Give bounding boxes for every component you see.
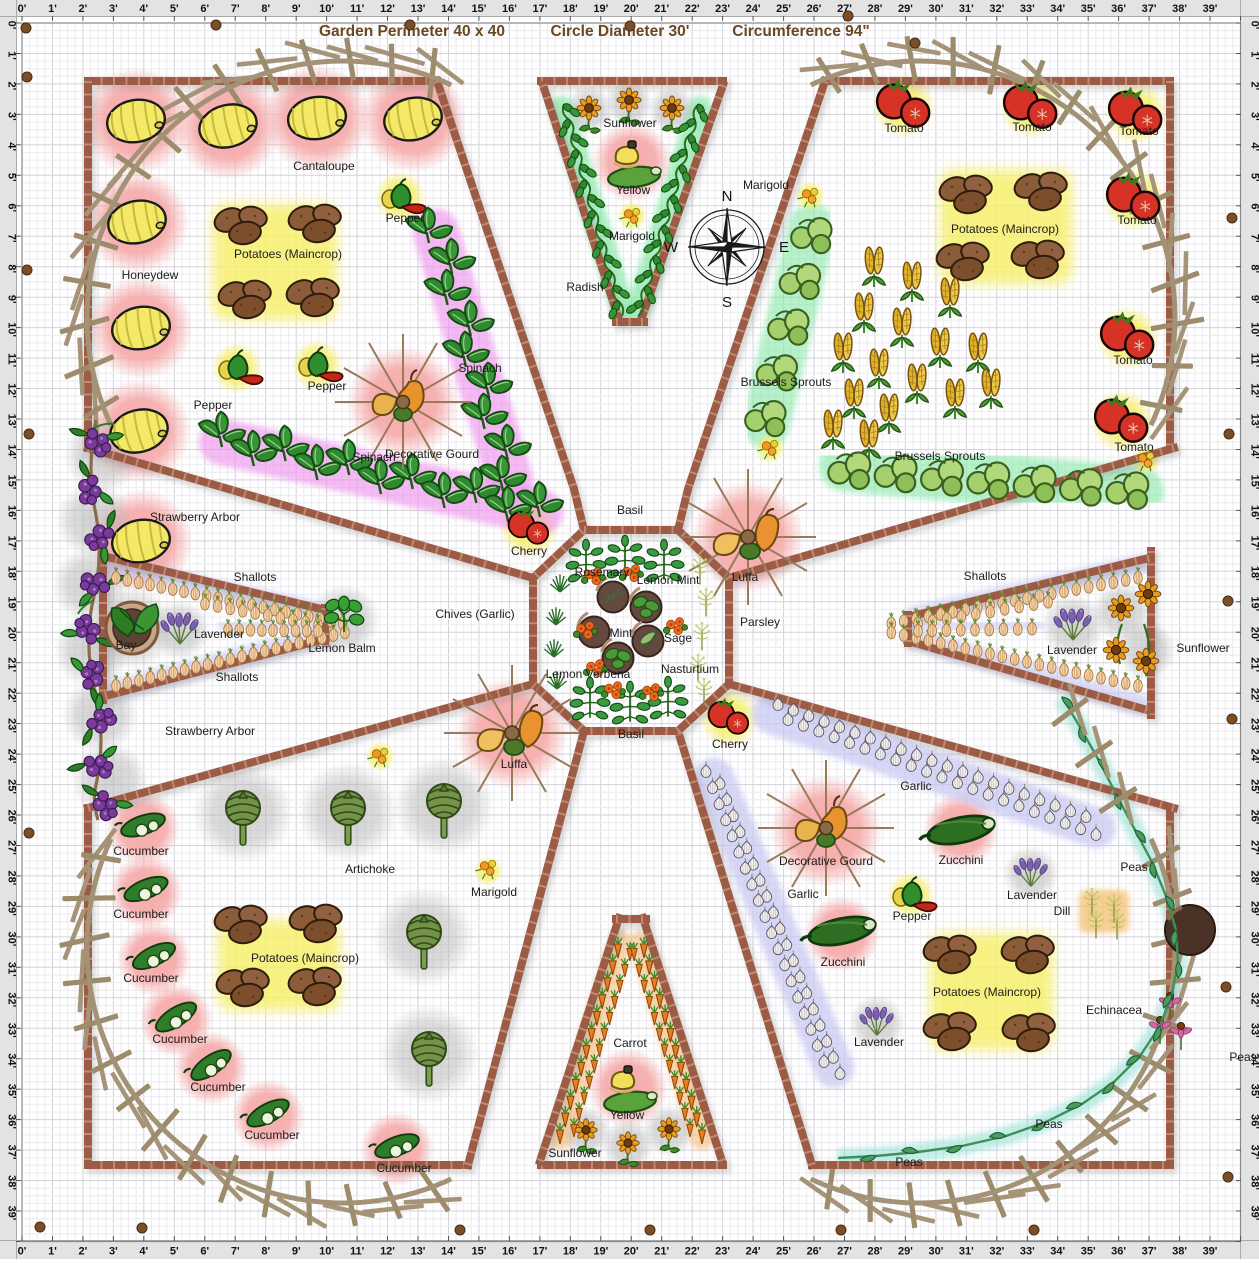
svg-text:2': 2'	[6, 82, 18, 91]
svg-text:36': 36'	[1249, 1114, 1259, 1129]
svg-text:Basil: Basil	[618, 727, 644, 741]
svg-text:25': 25'	[1249, 779, 1259, 794]
svg-text:34': 34'	[6, 1053, 18, 1068]
svg-text:Bay: Bay	[116, 638, 137, 652]
svg-text:Circumference 94": Circumference 94"	[732, 23, 869, 40]
svg-text:Tomato: Tomato	[884, 121, 924, 135]
svg-text:24': 24'	[1249, 749, 1259, 764]
svg-text:34': 34'	[1050, 3, 1065, 15]
svg-text:14': 14'	[441, 3, 456, 15]
svg-text:3': 3'	[109, 3, 118, 15]
svg-text:27': 27'	[837, 1246, 852, 1258]
svg-text:0': 0'	[18, 1246, 27, 1258]
svg-text:Cucumber: Cucumber	[113, 844, 168, 858]
svg-text:4': 4'	[6, 142, 18, 151]
svg-text:20': 20'	[6, 627, 18, 642]
svg-text:24': 24'	[746, 3, 761, 15]
svg-text:13': 13'	[1249, 414, 1259, 429]
svg-text:Tomato: Tomato	[1114, 440, 1154, 454]
svg-text:Pepper: Pepper	[194, 398, 233, 412]
svg-text:27': 27'	[6, 840, 18, 855]
svg-text:10': 10'	[1249, 322, 1259, 337]
svg-text:22': 22'	[6, 688, 18, 703]
svg-text:12': 12'	[380, 3, 395, 15]
svg-text:21': 21'	[654, 3, 669, 15]
svg-text:11': 11'	[350, 3, 365, 15]
svg-text:3': 3'	[1249, 112, 1259, 121]
svg-text:Cucumber: Cucumber	[376, 1161, 431, 1175]
svg-text:21': 21'	[6, 657, 18, 672]
svg-text:36': 36'	[6, 1114, 18, 1129]
svg-text:18': 18'	[563, 1246, 578, 1258]
svg-text:36': 36'	[1111, 3, 1126, 15]
svg-text:10': 10'	[319, 3, 334, 15]
svg-text:33': 33'	[1020, 3, 1035, 15]
svg-text:Garlic: Garlic	[900, 779, 931, 793]
svg-text:37': 37'	[1142, 3, 1157, 15]
svg-text:Rosemary: Rosemary	[575, 565, 630, 579]
svg-text:Artichoke: Artichoke	[345, 862, 395, 876]
svg-text:26': 26'	[807, 1246, 822, 1258]
svg-text:Cucumber: Cucumber	[244, 1128, 299, 1142]
svg-text:7': 7'	[231, 3, 240, 15]
svg-text:18': 18'	[1249, 566, 1259, 581]
svg-text:5': 5'	[170, 1246, 179, 1258]
svg-text:Brussels Sprouts: Brussels Sprouts	[895, 449, 986, 463]
svg-text:Marigold: Marigold	[743, 178, 789, 192]
svg-text:E: E	[779, 239, 789, 256]
svg-text:Yellow: Yellow	[610, 1108, 645, 1122]
svg-text:35': 35'	[1081, 3, 1096, 15]
svg-text:Tomato: Tomato	[1012, 120, 1052, 134]
svg-text:12': 12'	[1249, 383, 1259, 398]
svg-text:Peas: Peas	[1120, 860, 1147, 874]
svg-text:32': 32'	[1249, 992, 1259, 1007]
svg-text:6': 6'	[200, 1246, 209, 1258]
svg-text:33': 33'	[1249, 1023, 1259, 1038]
svg-text:28': 28'	[867, 1246, 882, 1258]
svg-text:Peas: Peas	[1035, 1117, 1062, 1131]
svg-text:14': 14'	[1249, 444, 1259, 459]
svg-text:35': 35'	[6, 1084, 18, 1099]
svg-text:26': 26'	[1249, 810, 1259, 825]
svg-text:15': 15'	[6, 474, 18, 489]
svg-text:13': 13'	[411, 1246, 426, 1258]
svg-text:6': 6'	[1249, 203, 1259, 212]
svg-text:19': 19'	[593, 3, 608, 15]
svg-text:Decorative Gourd: Decorative Gourd	[779, 854, 873, 868]
svg-text:29': 29'	[898, 1246, 913, 1258]
svg-text:Potatoes (Maincrop): Potatoes (Maincrop)	[951, 222, 1059, 236]
svg-text:9': 9'	[292, 1246, 301, 1258]
svg-text:Potatoes (Maincrop): Potatoes (Maincrop)	[933, 985, 1041, 999]
svg-text:Garlic: Garlic	[787, 887, 818, 901]
svg-text:35': 35'	[1249, 1084, 1259, 1099]
svg-text:Echinacea: Echinacea	[1086, 1003, 1142, 1017]
svg-text:39': 39'	[1249, 1206, 1259, 1221]
svg-text:26': 26'	[6, 810, 18, 825]
svg-text:30': 30'	[1249, 931, 1259, 946]
svg-text:6': 6'	[6, 203, 18, 212]
svg-text:32': 32'	[6, 992, 18, 1007]
svg-text:Zucchini: Zucchini	[939, 853, 984, 867]
svg-text:Strawberry Arbor: Strawberry Arbor	[150, 510, 240, 524]
svg-text:23': 23'	[6, 718, 18, 733]
svg-text:20': 20'	[624, 3, 639, 15]
svg-text:Mint: Mint	[610, 626, 633, 640]
svg-text:38': 38'	[6, 1175, 18, 1190]
svg-text:30': 30'	[6, 931, 18, 946]
svg-text:7': 7'	[6, 234, 18, 243]
svg-text:Lavender: Lavender	[1047, 643, 1097, 657]
svg-text:21': 21'	[654, 1246, 669, 1258]
svg-text:Parsley: Parsley	[740, 615, 780, 629]
svg-text:Decorative Gourd: Decorative Gourd	[385, 447, 479, 461]
svg-text:Potatoes (Maincrop): Potatoes (Maincrop)	[234, 247, 342, 261]
svg-text:Sunflower: Sunflower	[548, 1146, 601, 1160]
svg-text:Carrot: Carrot	[613, 1036, 647, 1050]
svg-text:Cucumber: Cucumber	[113, 907, 168, 921]
svg-text:Marigold: Marigold	[609, 229, 655, 243]
svg-text:31': 31'	[959, 1246, 974, 1258]
svg-text:8': 8'	[6, 264, 18, 273]
svg-text:23': 23'	[715, 3, 730, 15]
svg-text:Sage: Sage	[664, 631, 692, 645]
svg-text:16': 16'	[502, 1246, 517, 1258]
svg-text:13': 13'	[411, 3, 426, 15]
svg-text:Peas: Peas	[1229, 1050, 1256, 1064]
svg-text:31': 31'	[6, 962, 18, 977]
svg-text:17': 17'	[6, 535, 18, 550]
svg-text:11': 11'	[1249, 353, 1259, 368]
svg-text:0': 0'	[1249, 21, 1259, 30]
svg-text:3': 3'	[6, 112, 18, 121]
svg-text:28': 28'	[867, 3, 882, 15]
svg-text:32': 32'	[989, 1246, 1004, 1258]
svg-text:28': 28'	[6, 870, 18, 885]
svg-text:2': 2'	[79, 1246, 88, 1258]
svg-text:Sunflower: Sunflower	[603, 116, 656, 130]
svg-text:1': 1'	[6, 51, 18, 60]
svg-text:Lavender: Lavender	[1007, 888, 1057, 902]
svg-text:10': 10'	[6, 322, 18, 337]
svg-text:15': 15'	[1249, 474, 1259, 489]
svg-text:17': 17'	[532, 1246, 547, 1258]
svg-text:Brussels Sprouts: Brussels Sprouts	[741, 375, 832, 389]
svg-text:28': 28'	[1249, 870, 1259, 885]
svg-text:35': 35'	[1081, 1246, 1096, 1258]
svg-text:39': 39'	[1203, 1246, 1218, 1258]
svg-text:Cucumber: Cucumber	[123, 971, 178, 985]
svg-text:37': 37'	[1249, 1145, 1259, 1160]
svg-text:38': 38'	[1172, 3, 1187, 15]
svg-text:38': 38'	[1172, 1246, 1187, 1258]
svg-text:14': 14'	[441, 1246, 456, 1258]
svg-text:12': 12'	[380, 1246, 395, 1258]
svg-text:Marigold: Marigold	[471, 885, 517, 899]
svg-text:Shallots: Shallots	[964, 569, 1007, 583]
svg-text:18': 18'	[6, 566, 18, 581]
svg-text:Tomato: Tomato	[1117, 213, 1157, 227]
svg-text:Lemon Verbena: Lemon Verbena	[546, 667, 631, 681]
svg-text:30': 30'	[928, 3, 943, 15]
svg-text:19': 19'	[6, 596, 18, 611]
svg-text:0': 0'	[6, 21, 18, 30]
svg-text:25': 25'	[776, 3, 791, 15]
svg-text:23': 23'	[1249, 718, 1259, 733]
svg-text:14': 14'	[6, 444, 18, 459]
svg-text:1': 1'	[1249, 51, 1259, 60]
svg-text:Pepper: Pepper	[893, 909, 932, 923]
svg-text:N: N	[722, 188, 733, 205]
svg-text:20': 20'	[1249, 627, 1259, 642]
svg-text:Pepper: Pepper	[386, 211, 425, 225]
svg-text:Lavender: Lavender	[854, 1035, 904, 1049]
svg-text:3': 3'	[109, 1246, 118, 1258]
svg-text:39': 39'	[6, 1206, 18, 1221]
svg-text:33': 33'	[6, 1023, 18, 1038]
svg-text:22': 22'	[685, 3, 700, 15]
svg-text:Shallots: Shallots	[234, 570, 277, 584]
svg-text:4': 4'	[139, 1246, 148, 1258]
svg-text:32': 32'	[989, 3, 1004, 15]
svg-text:Dill: Dill	[1054, 904, 1071, 918]
svg-text:36': 36'	[1111, 1246, 1126, 1258]
svg-text:Pepper: Pepper	[308, 379, 347, 393]
svg-text:18': 18'	[563, 3, 578, 15]
svg-text:15': 15'	[471, 1246, 486, 1258]
svg-text:17': 17'	[532, 3, 547, 15]
svg-text:Lavender: Lavender	[194, 627, 244, 641]
svg-text:19': 19'	[593, 1246, 608, 1258]
svg-text:19': 19'	[1249, 596, 1259, 611]
svg-text:24': 24'	[746, 1246, 761, 1258]
svg-text:Zucchini: Zucchini	[821, 955, 866, 969]
svg-text:Potatoes (Maincrop): Potatoes (Maincrop)	[251, 951, 359, 965]
svg-text:25': 25'	[6, 779, 18, 794]
svg-text:Tomato: Tomato	[1119, 124, 1159, 138]
svg-text:Lemon Balm: Lemon Balm	[308, 641, 375, 655]
svg-text:9': 9'	[1249, 295, 1259, 304]
svg-text:11': 11'	[350, 1246, 365, 1258]
svg-text:0': 0'	[18, 3, 27, 15]
svg-text:Cherry: Cherry	[511, 544, 547, 558]
svg-text:13': 13'	[6, 414, 18, 429]
svg-text:10': 10'	[319, 1246, 334, 1258]
svg-text:Lemon Mint: Lemon Mint	[637, 573, 700, 587]
svg-text:5': 5'	[1249, 173, 1259, 182]
svg-text:37': 37'	[1142, 1246, 1157, 1258]
svg-text:24': 24'	[6, 749, 18, 764]
svg-text:31': 31'	[959, 3, 974, 15]
svg-text:Circle Diameter 30': Circle Diameter 30'	[551, 23, 690, 40]
svg-text:22': 22'	[1249, 688, 1259, 703]
svg-text:1': 1'	[48, 3, 57, 15]
svg-text:8': 8'	[261, 1246, 270, 1258]
svg-text:Cantaloupe: Cantaloupe	[293, 159, 355, 173]
svg-text:6': 6'	[200, 3, 209, 15]
svg-text:Chives (Garlic): Chives (Garlic)	[435, 607, 514, 621]
svg-text:22': 22'	[685, 1246, 700, 1258]
svg-text:5': 5'	[170, 3, 179, 15]
svg-text:Luffa: Luffa	[732, 570, 759, 584]
svg-text:Honeydew: Honeydew	[122, 268, 179, 282]
svg-text:16': 16'	[502, 3, 517, 15]
svg-text:Shallots: Shallots	[216, 670, 259, 684]
svg-text:Basil: Basil	[617, 503, 643, 517]
svg-text:Cherry: Cherry	[712, 737, 748, 751]
svg-text:Cucumber: Cucumber	[190, 1080, 245, 1094]
svg-text:S: S	[722, 294, 732, 311]
svg-text:39': 39'	[1203, 3, 1218, 15]
svg-text:Luffa: Luffa	[501, 757, 528, 771]
svg-text:15': 15'	[471, 3, 486, 15]
svg-text:4': 4'	[139, 3, 148, 15]
svg-text:Nasturtium: Nasturtium	[661, 662, 719, 676]
svg-text:30': 30'	[928, 1246, 943, 1258]
svg-text:2': 2'	[79, 3, 88, 15]
svg-text:21': 21'	[1249, 657, 1259, 672]
svg-text:9': 9'	[292, 3, 301, 15]
svg-text:34': 34'	[1050, 1246, 1065, 1258]
svg-text:29': 29'	[1249, 901, 1259, 916]
svg-text:26': 26'	[807, 3, 822, 15]
svg-text:Tomato: Tomato	[1113, 353, 1153, 367]
svg-text:16': 16'	[1249, 505, 1259, 520]
svg-text:Cucumber: Cucumber	[152, 1032, 207, 1046]
svg-text:Sunflower: Sunflower	[1176, 641, 1229, 655]
svg-text:31': 31'	[1249, 962, 1259, 977]
svg-text:5': 5'	[6, 173, 18, 182]
svg-text:4': 4'	[1249, 142, 1259, 151]
svg-text:29': 29'	[6, 901, 18, 916]
svg-text:12': 12'	[6, 383, 18, 398]
svg-text:27': 27'	[1249, 840, 1259, 855]
svg-text:38': 38'	[1249, 1175, 1259, 1190]
svg-text:1': 1'	[48, 1246, 57, 1258]
svg-text:33': 33'	[1020, 1246, 1035, 1258]
svg-text:17': 17'	[1249, 535, 1259, 550]
svg-text:16': 16'	[6, 505, 18, 520]
svg-text:Radish: Radish	[566, 280, 603, 294]
svg-text:25': 25'	[776, 1246, 791, 1258]
svg-text:Yellow: Yellow	[616, 183, 651, 197]
svg-text:11': 11'	[6, 353, 18, 368]
svg-text:37': 37'	[6, 1145, 18, 1160]
svg-text:2': 2'	[1249, 82, 1259, 91]
svg-text:20': 20'	[624, 1246, 639, 1258]
svg-text:23': 23'	[715, 1246, 730, 1258]
svg-text:Spinach: Spinach	[458, 361, 501, 375]
svg-text:Strawberry Arbor: Strawberry Arbor	[165, 724, 255, 738]
svg-text:8': 8'	[261, 3, 270, 15]
svg-text:9': 9'	[6, 295, 18, 304]
svg-text:7': 7'	[1249, 234, 1259, 243]
svg-text:Peas: Peas	[895, 1155, 922, 1169]
svg-text:8': 8'	[1249, 264, 1259, 273]
svg-text:29': 29'	[898, 3, 913, 15]
svg-text:7': 7'	[231, 1246, 240, 1258]
